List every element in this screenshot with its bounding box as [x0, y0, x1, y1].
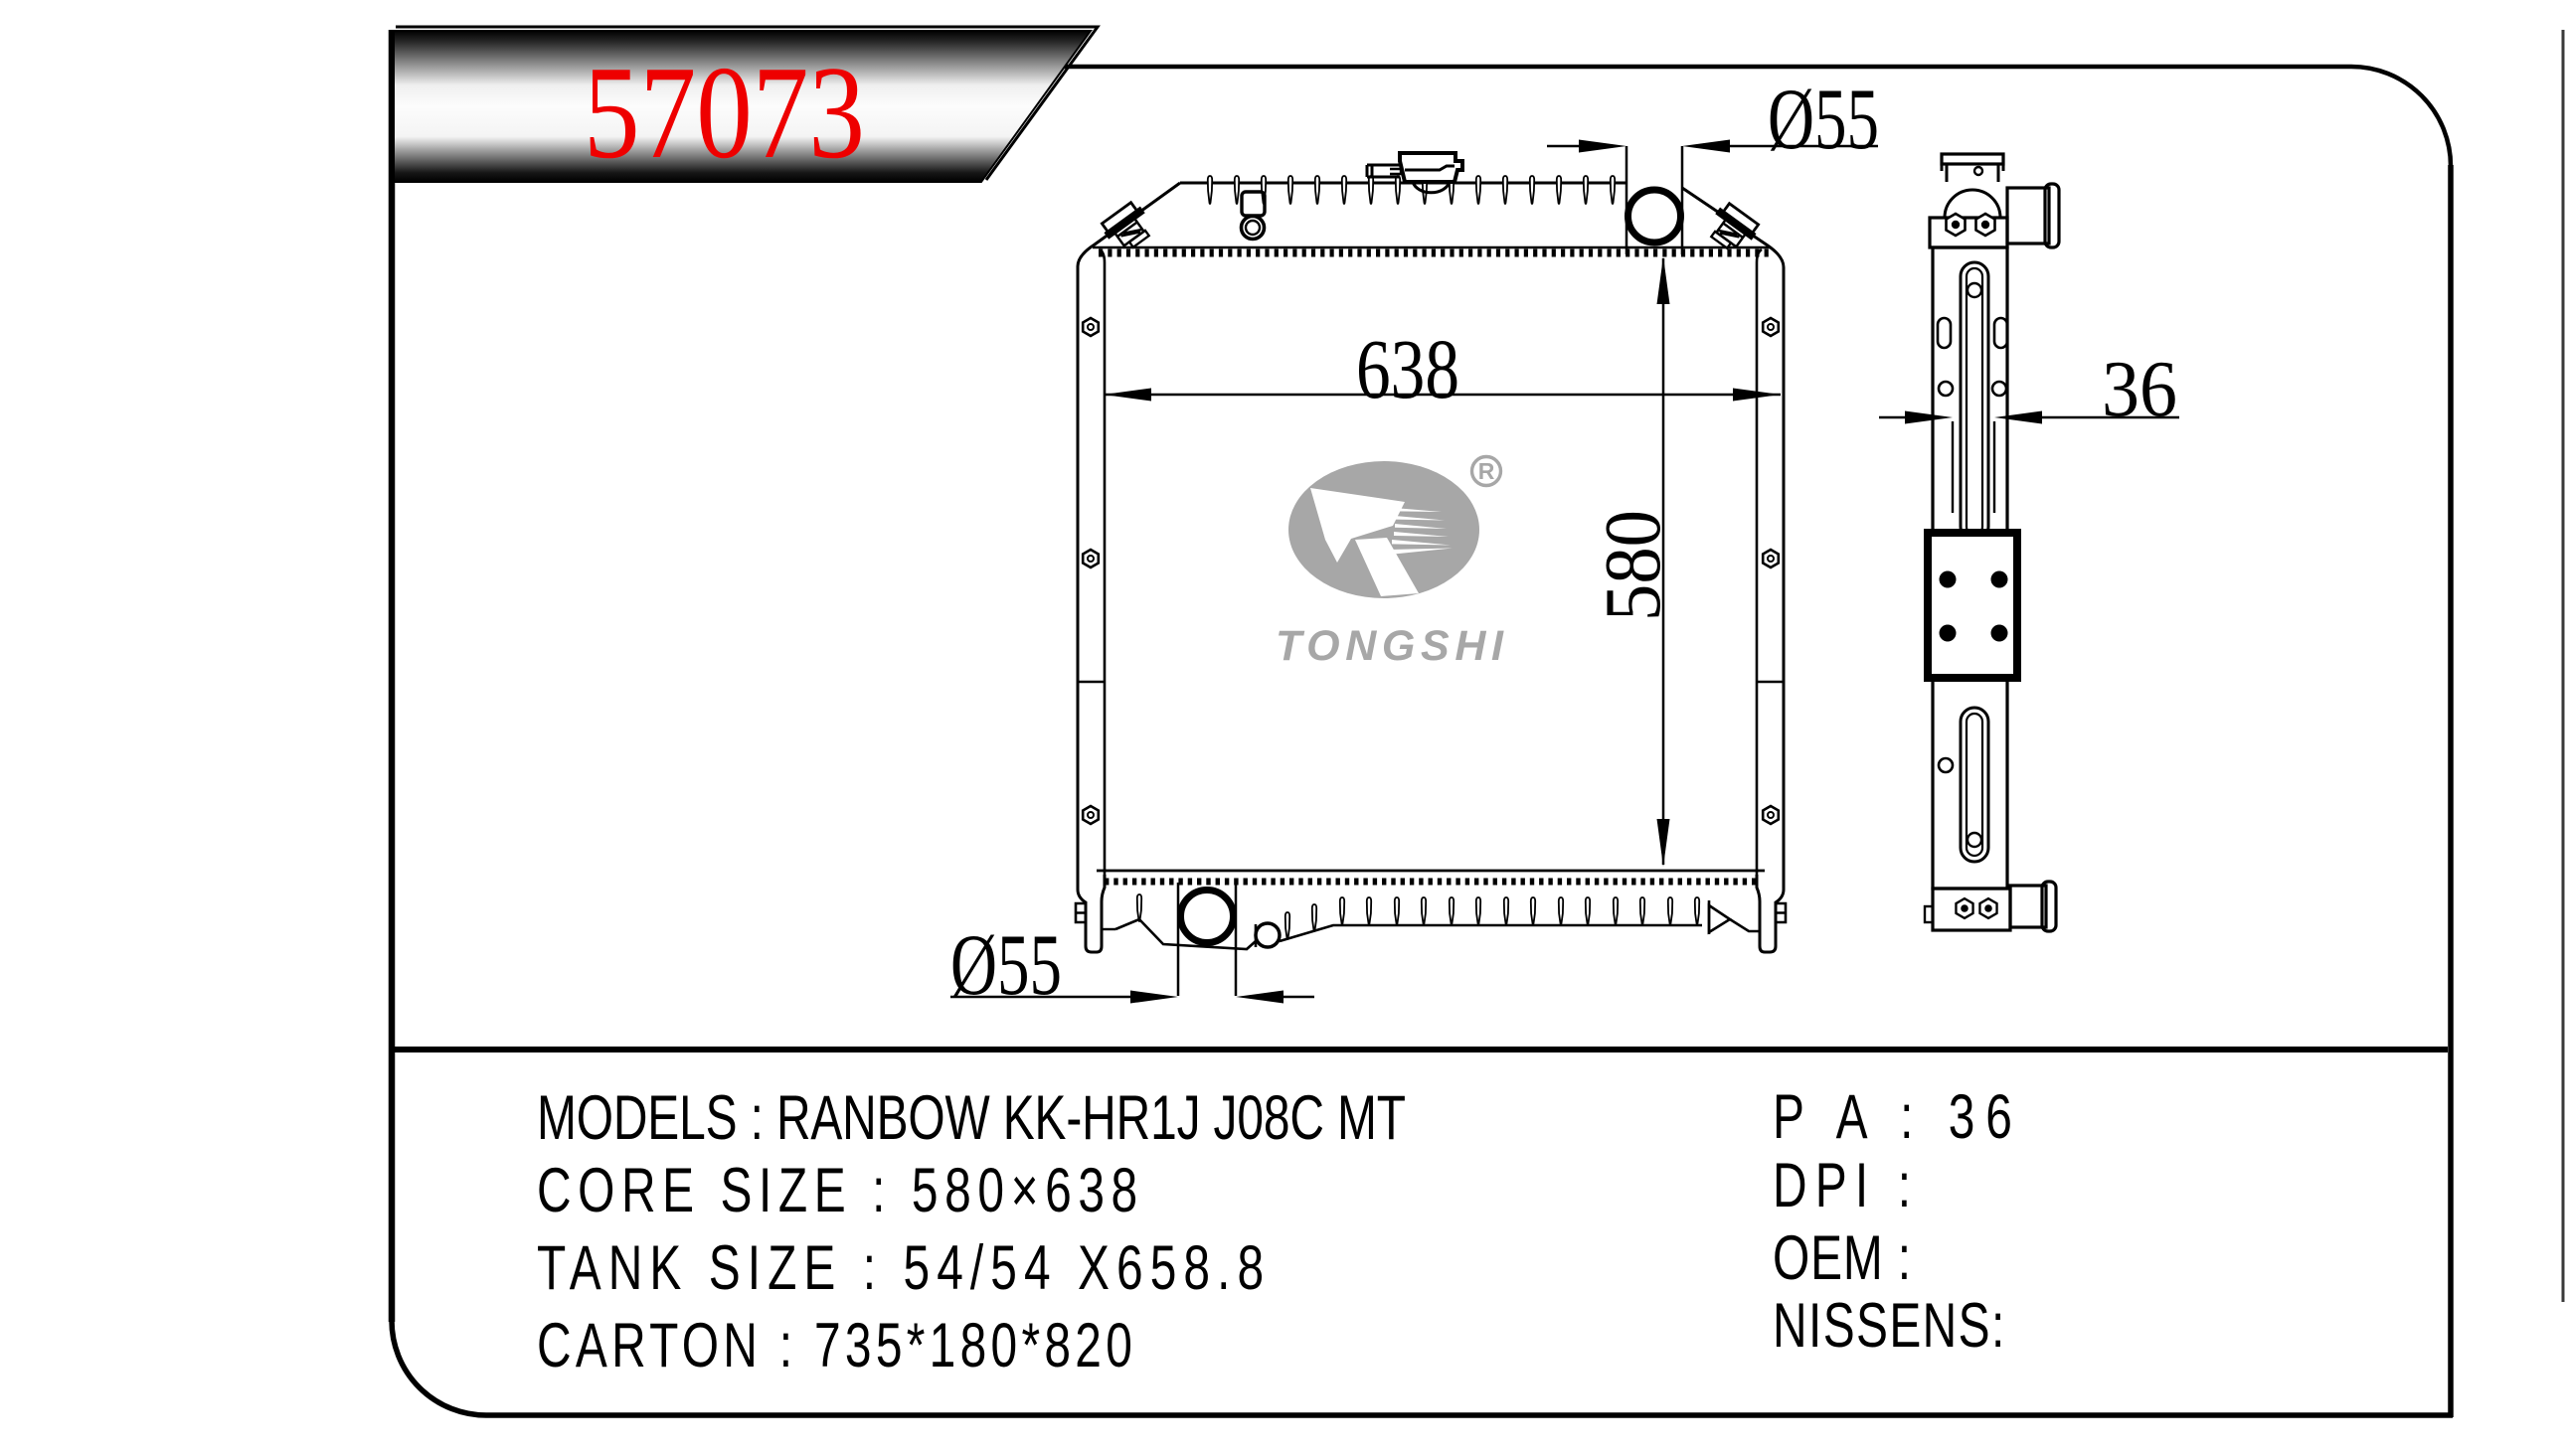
svg-text:OEM :: OEM : [1773, 1222, 1911, 1293]
svg-text:Ø55: Ø55 [1768, 72, 1879, 168]
svg-text:TONGSHI: TONGSHI [1276, 622, 1504, 670]
svg-text:R: R [1478, 458, 1495, 484]
svg-text:580: 580 [1590, 510, 1677, 621]
svg-text:Ø55: Ø55 [950, 917, 1062, 1014]
svg-text:36: 36 [2102, 346, 2177, 433]
svg-text:CORE SIZE : 580×638: CORE SIZE : 580×638 [537, 1155, 1137, 1225]
svg-text:MODELS : RANBOW KK-HR1J J08C M: MODELS : RANBOW KK-HR1J J08C MT [537, 1082, 1406, 1153]
svg-text:638: 638 [1356, 321, 1459, 416]
svg-text:57073: 57073 [584, 39, 865, 186]
